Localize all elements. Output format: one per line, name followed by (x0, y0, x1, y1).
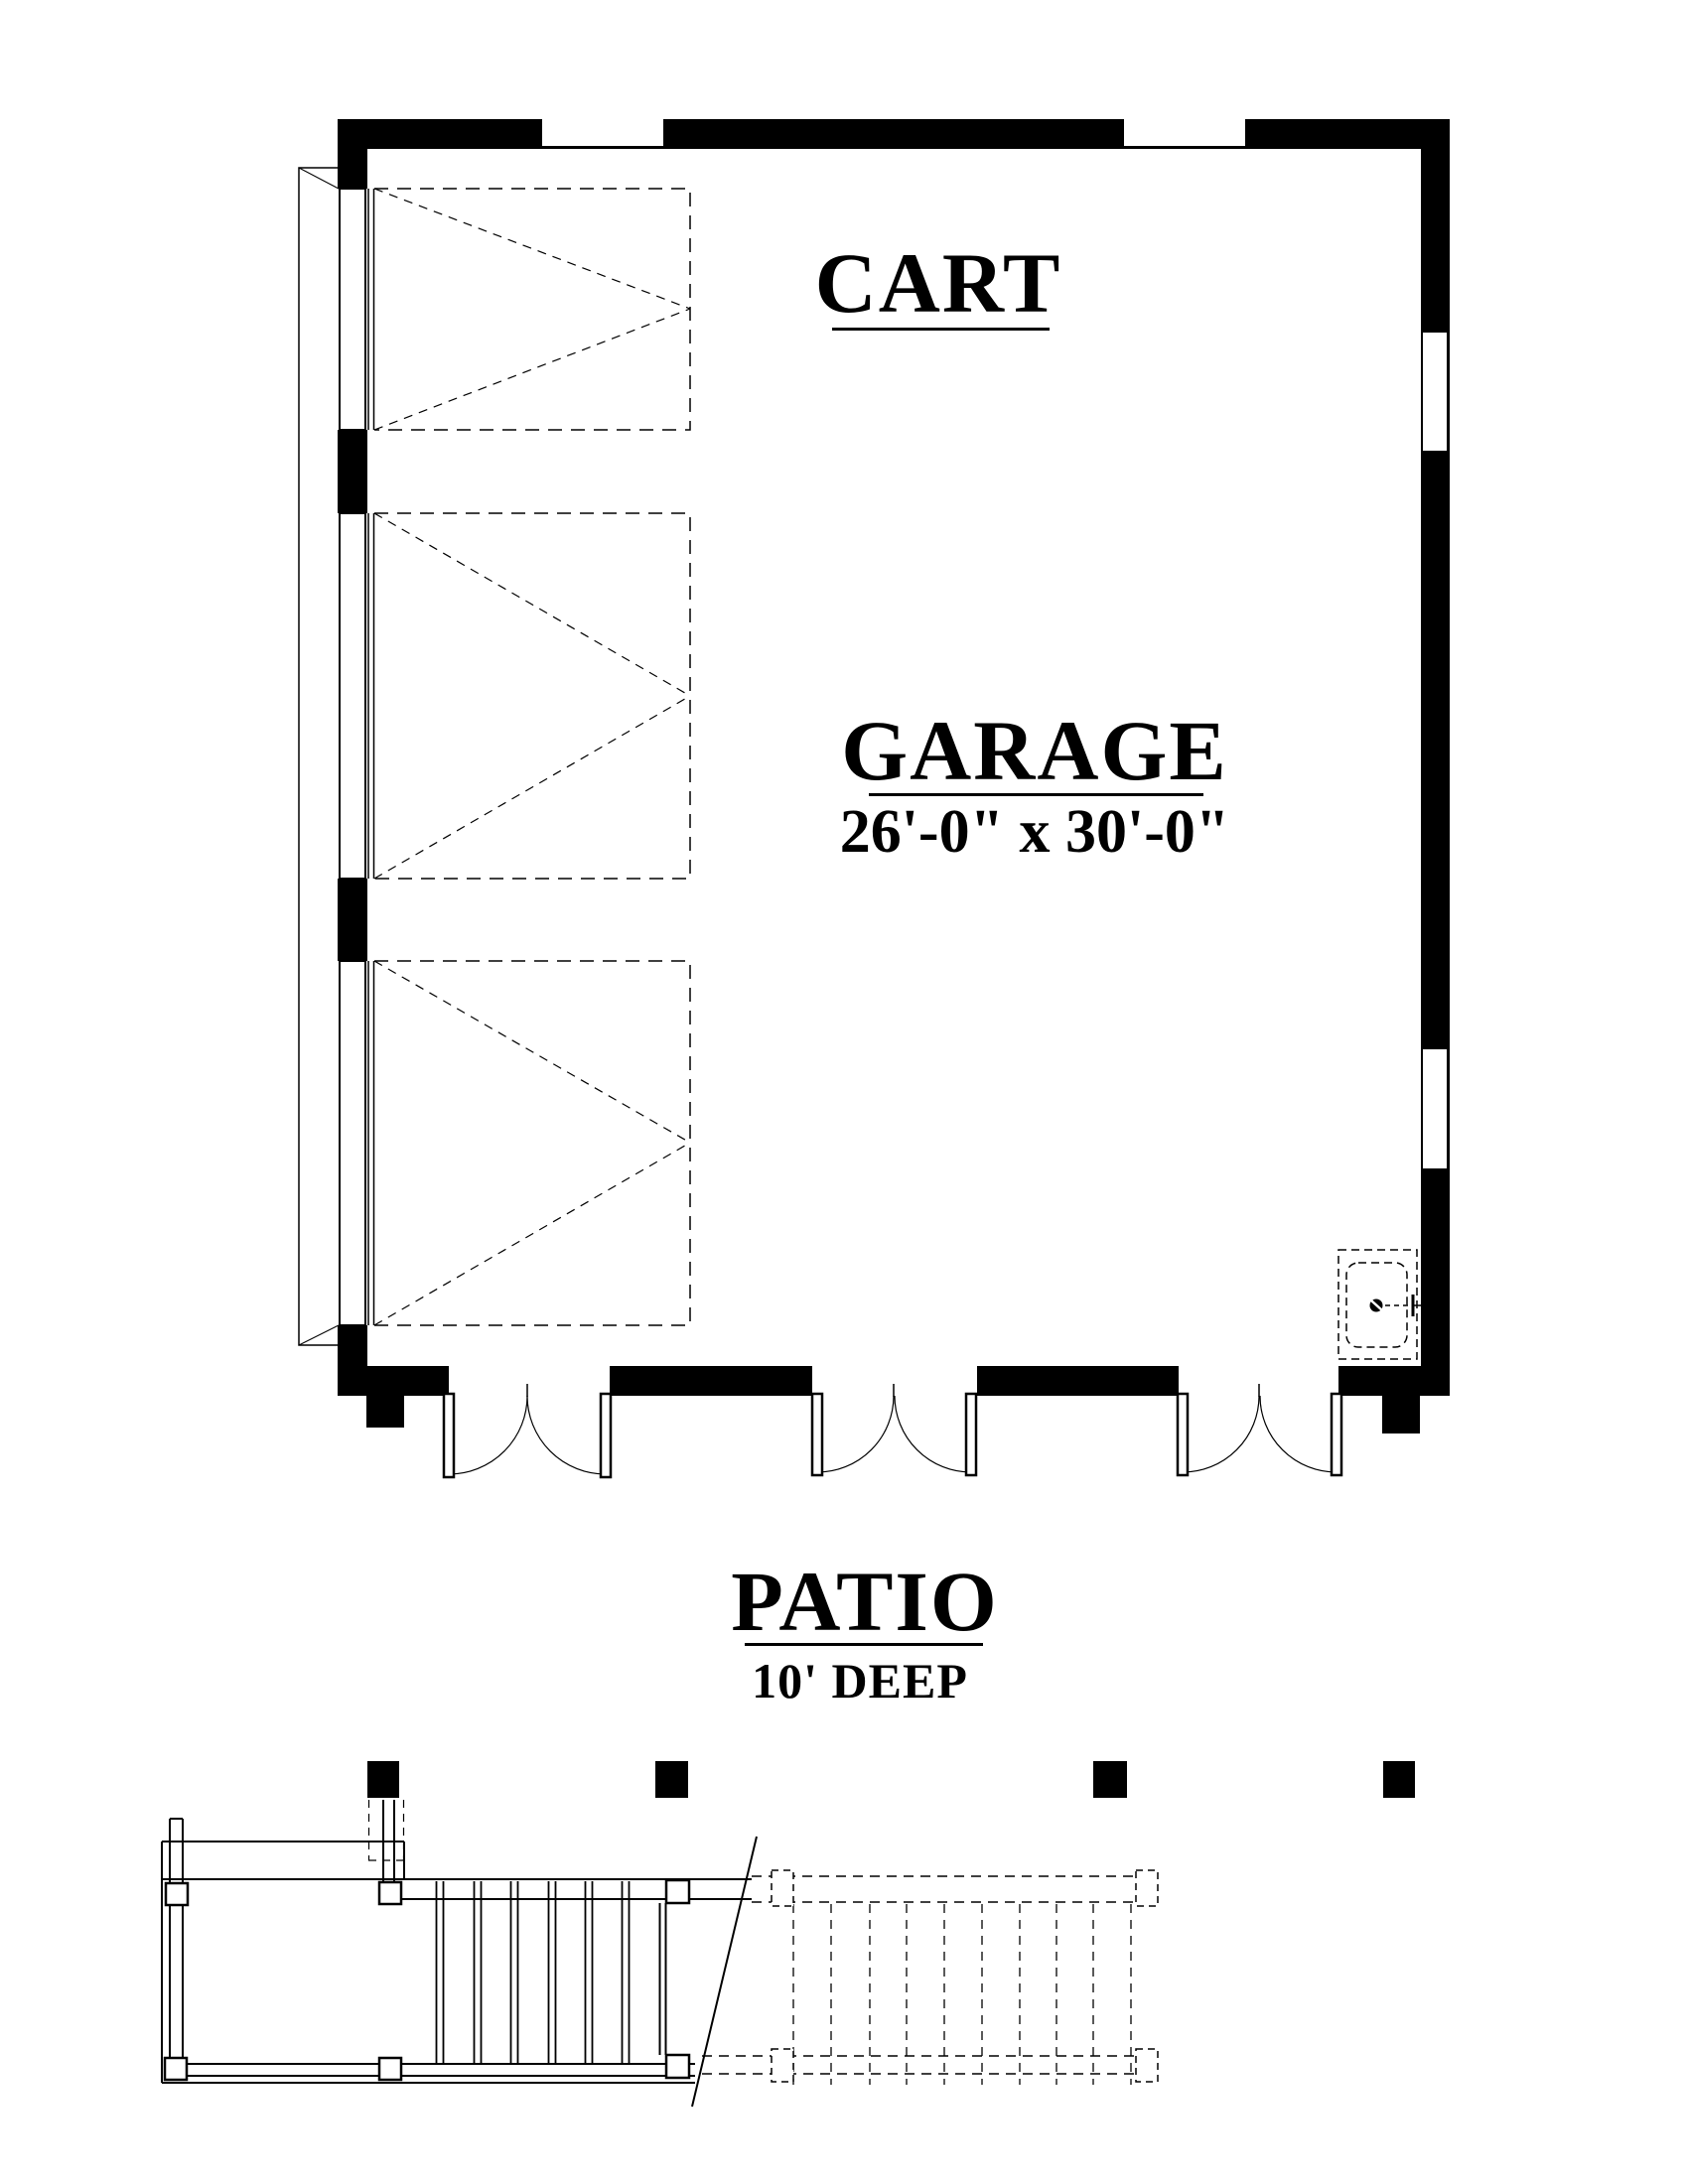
patio-door-2 (812, 1384, 976, 1475)
patio-column-1 (367, 1761, 399, 1798)
door-leaf (812, 1394, 822, 1475)
patio-door-3 (1178, 1384, 1341, 1475)
patio-door-1 (444, 1384, 611, 1477)
garage-door-tracks (368, 189, 374, 1325)
stair-treads-dashed (793, 1904, 1131, 2085)
stair-treads (437, 1881, 630, 2064)
patio-column-4 (1383, 1761, 1415, 1798)
railing-posts-dashed (772, 1870, 1158, 2082)
door-leaf (966, 1394, 976, 1475)
floor-plan: CART GARAGE 26'-0" x 30'-0" PATIO 10' DE… (0, 0, 1688, 2184)
utility-sink (1338, 1250, 1421, 1359)
garage-label-underline (869, 793, 1203, 796)
bottom-wall-seg-4 (1338, 1366, 1450, 1396)
patio-label-underline (745, 1643, 983, 1646)
top-window-2 (1124, 119, 1245, 146)
patio-pilaster-right (1382, 1396, 1420, 1433)
garage-door-slab-1 (340, 189, 365, 430)
landing-railings (170, 1819, 752, 2076)
left-wall-pier-corner-top (338, 119, 367, 189)
garage-door-slabs (340, 189, 365, 1325)
garage-door-swing-2 (374, 513, 690, 879)
door-leaf (601, 1394, 611, 1477)
left-wall-pier-1 (338, 430, 367, 513)
railing-posts (165, 1880, 689, 2080)
garage-door-slab-2 (340, 513, 365, 879)
patio-column-2 (655, 1761, 688, 1798)
patio-depth-label: 10' DEEP (752, 1656, 968, 1706)
garage-door-swing-3 (374, 961, 690, 1325)
stairs-dashed-continuation (702, 1876, 1158, 2074)
garage-door-swings (374, 189, 690, 1325)
roof-overhang-outline (299, 168, 340, 1345)
right-window-2 (1423, 1049, 1447, 1168)
garage-door-slab-3 (340, 961, 365, 1325)
top-wall (338, 119, 1450, 149)
right-wall (1421, 119, 1450, 1396)
patio-pilaster-left (366, 1396, 404, 1428)
garage-door-swing-1 (374, 189, 690, 430)
cart-room-label: CART (815, 240, 1062, 326)
top-window-1 (542, 119, 663, 146)
garage-dimensions-label: 26'-0" x 30'-0" (840, 801, 1230, 863)
door-leaf (1178, 1394, 1188, 1475)
stair-assembly (162, 1800, 1158, 2107)
patio-doors (444, 1384, 1341, 1477)
bottom-wall-seg-1 (338, 1366, 449, 1396)
patio-column-3 (1093, 1761, 1127, 1798)
patio-columns (367, 1761, 1415, 1798)
break-line (692, 1837, 757, 2107)
garage-room-label: GARAGE (841, 708, 1227, 793)
door-leaf (1332, 1394, 1341, 1475)
cart-label-underline (832, 328, 1050, 331)
right-window-1 (1423, 333, 1447, 451)
door-leaf (444, 1394, 454, 1477)
patio-room-label: PATIO (731, 1559, 999, 1644)
bottom-wall-seg-3 (977, 1366, 1179, 1396)
landing-outline (162, 1842, 695, 2083)
bottom-wall-seg-2 (610, 1366, 812, 1396)
left-wall-pier-2 (338, 879, 367, 961)
